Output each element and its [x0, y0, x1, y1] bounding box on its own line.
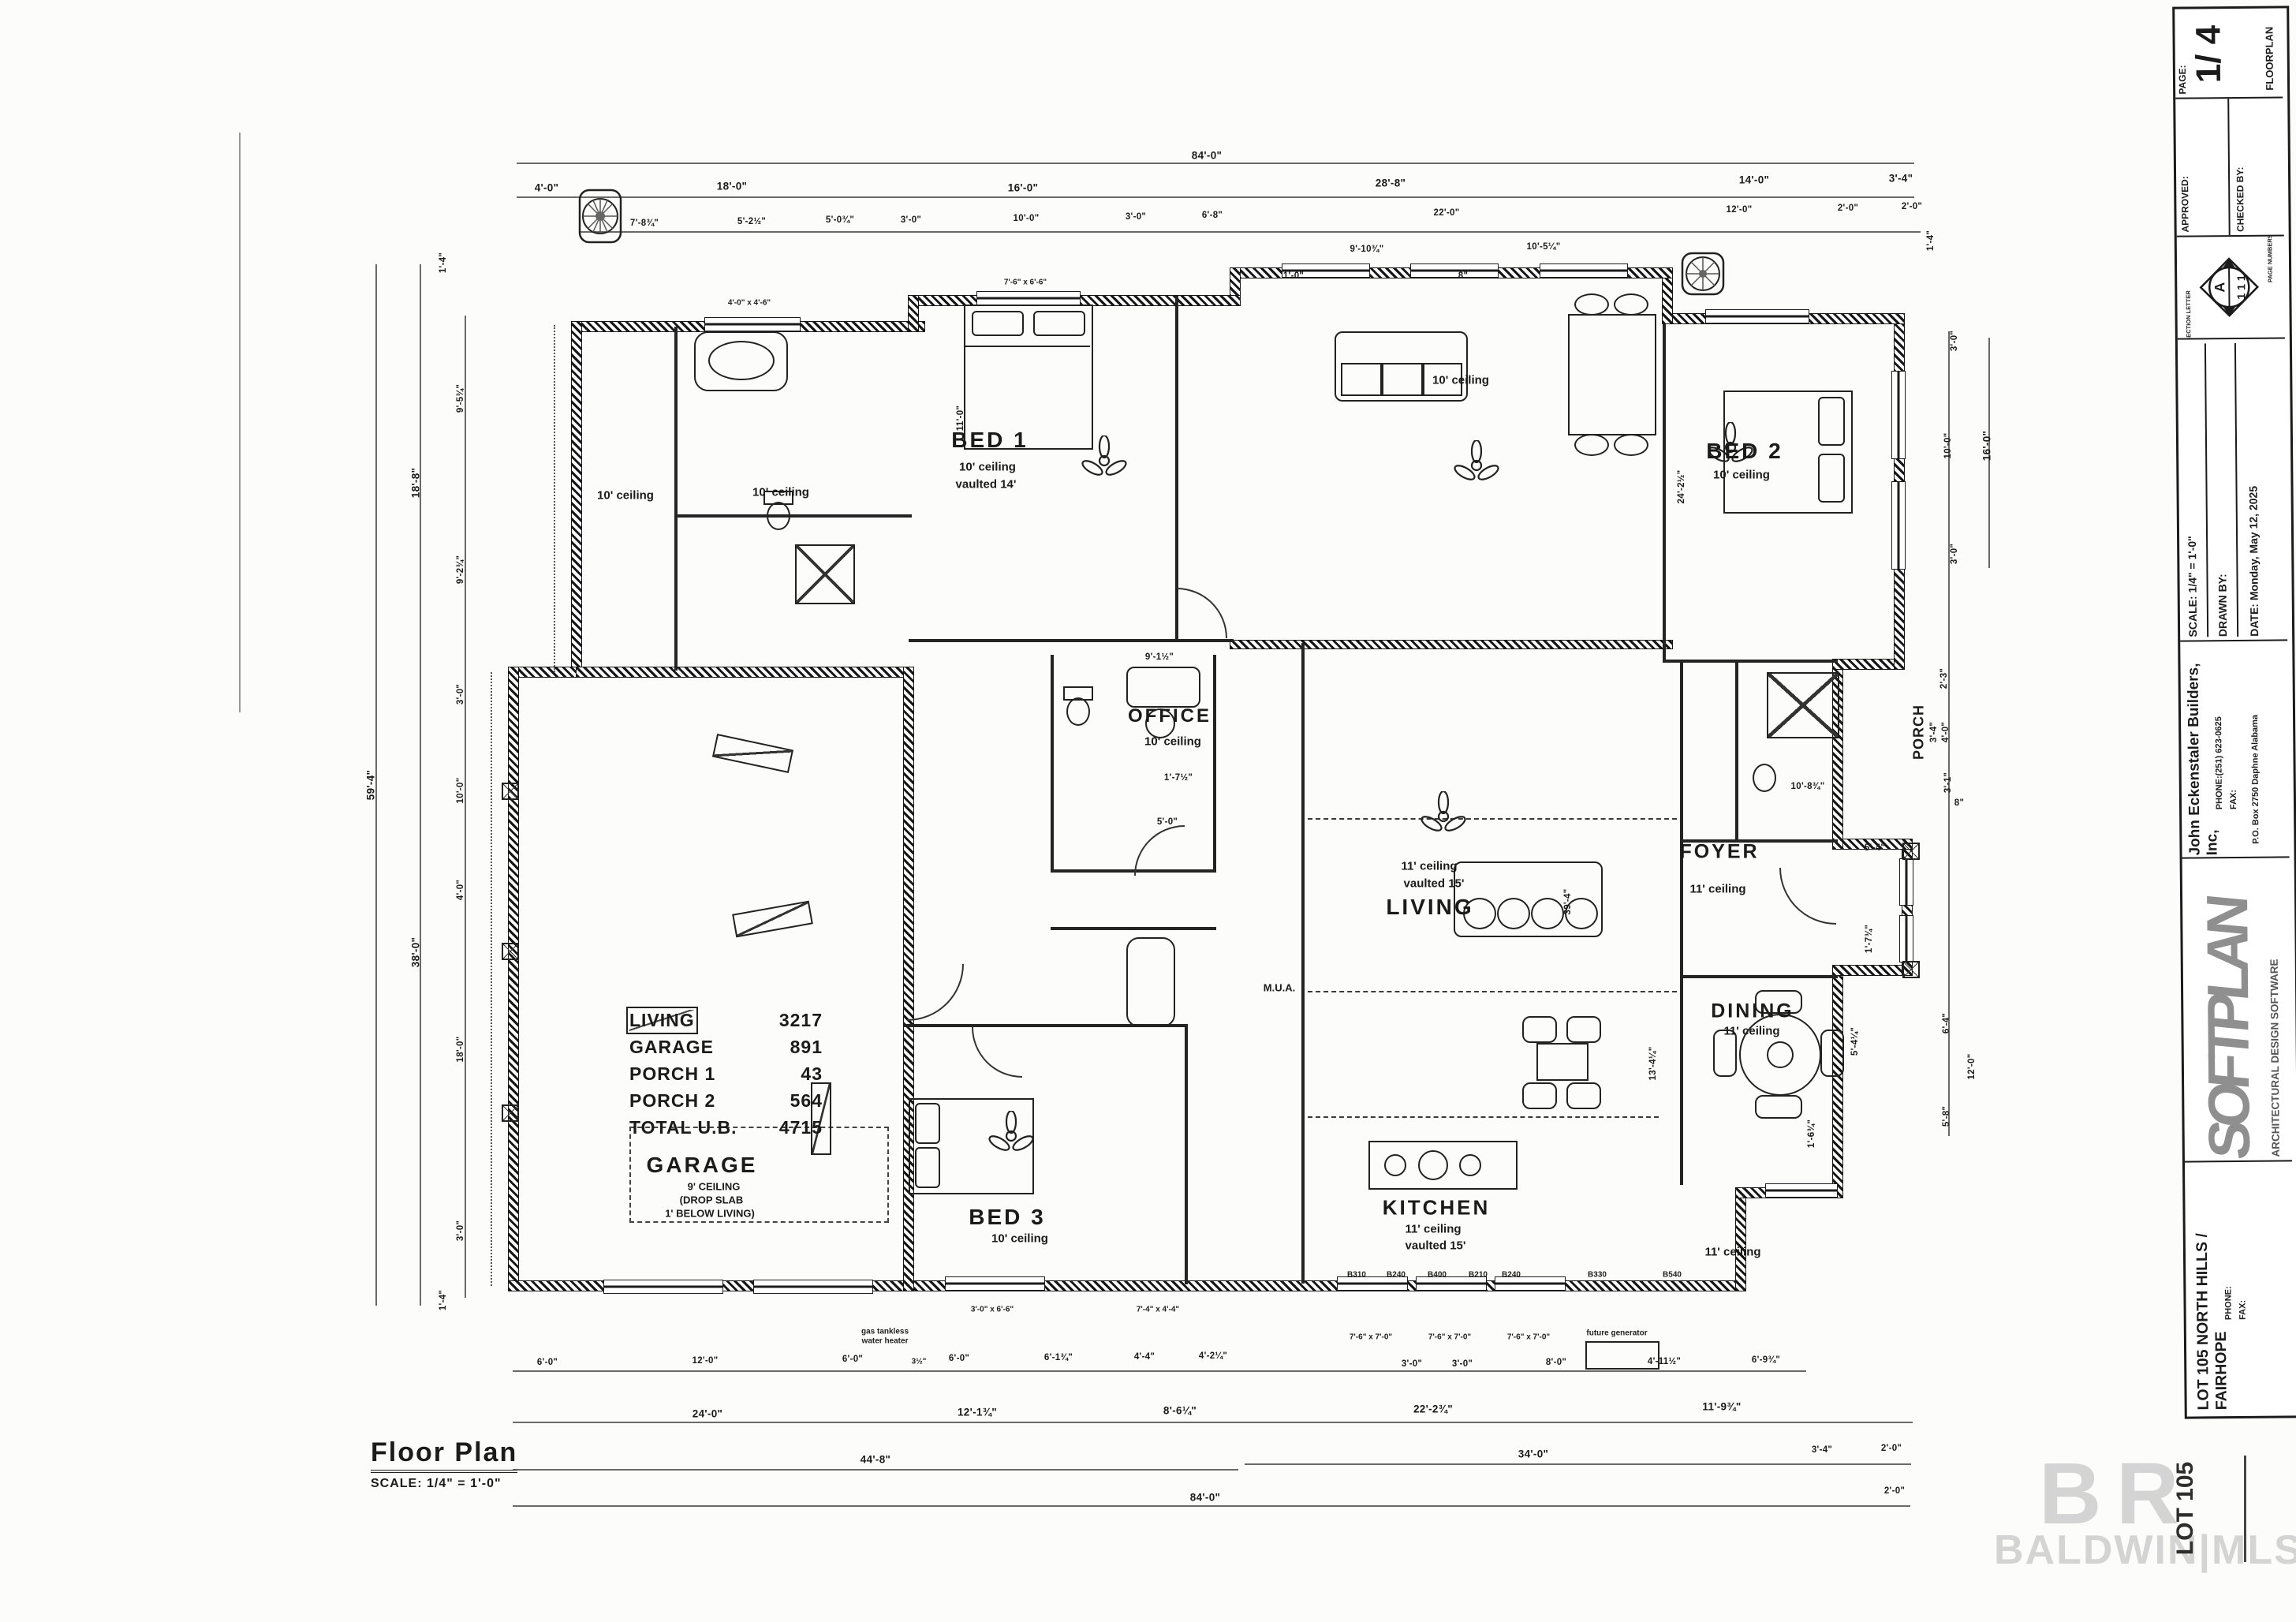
interior-wall — [1735, 663, 1738, 843]
garage-door-opening — [753, 1280, 873, 1294]
dimension-label: 8'-6¼" — [1163, 1405, 1197, 1417]
dimension-label: 3'-4" — [1812, 1445, 1832, 1455]
area-label: LIVING — [629, 1010, 695, 1031]
cabinet-code: B330 — [1588, 1271, 1607, 1280]
company-address: P.O. Box 2750 Daphne Alabama — [2250, 715, 2261, 844]
title-block: PAGE: 1/ 4 FLOORPLAN APPROVED: CHECKED B… — [2172, 6, 2296, 1418]
interior-wall — [674, 327, 678, 671]
room-note: vaulted 15' — [1406, 1239, 1466, 1253]
dimension-label: 4'-0" — [535, 182, 559, 194]
dimension-label: 5'-0¾" — [826, 215, 854, 225]
dimension-label: 28'-8" — [1376, 178, 1406, 189]
window — [1891, 371, 1906, 459]
dimension-label: 8" — [1458, 271, 1468, 281]
room-label-bed2: BED 2 — [1706, 439, 1783, 464]
dimension-label: 5'-0" — [1157, 817, 1178, 827]
dimension-label: 10'-0" — [1943, 432, 1953, 458]
sofa-cushion — [1531, 898, 1564, 929]
porch-column — [1902, 843, 1920, 860]
window-size-label: 7'-6" x 7'-0" — [1350, 1333, 1392, 1342]
room-note: (DROP SLAB — [680, 1194, 744, 1206]
title-block-project-section: LOT 105 NORTH HILLS / FAIRHOPE PHONE: FA… — [2185, 1161, 2294, 1411]
dim-line — [513, 1505, 1910, 1507]
door-swing — [1779, 868, 1836, 925]
window-size-label: 4'-0" x 4'-6" — [728, 299, 771, 308]
dimension-label: 2'-3" — [1939, 668, 1949, 689]
title-block-scale-section: SCALE: 1/4" = 1'-0" DRAWN BY: DATE: Mond… — [2178, 338, 2287, 641]
garage-eave-line — [491, 672, 492, 1286]
area-label: GARAGE — [629, 1037, 714, 1058]
cabinet-code: B240 — [1502, 1271, 1521, 1280]
dimension-label: 9'-10¾" — [1350, 245, 1384, 254]
dimension-label: 3'-4" — [1929, 722, 1939, 742]
dimension-label: 4'-2¼" — [1199, 1351, 1227, 1361]
vault-break-line — [1308, 991, 1677, 992]
dim-line — [580, 231, 1921, 233]
room-note: 10' ceiling — [1144, 735, 1201, 749]
dimension-label: 5'-2½" — [737, 217, 766, 226]
room-note: 10' ceiling — [991, 1232, 1048, 1246]
dimension-label: 3'-0" — [1950, 331, 1959, 351]
room-note: 1' BELOW LIVING) — [665, 1208, 755, 1220]
softplan-logo: SOFTPLAN — [2193, 898, 2263, 1162]
interior-wall — [1301, 643, 1305, 1284]
dim-line — [420, 264, 421, 1306]
room-note: 11' ceiling — [1405, 1223, 1461, 1236]
dimension-label: 3'-1" — [1943, 772, 1953, 793]
area-label: PORCH 2 — [629, 1090, 715, 1112]
pillow — [915, 1147, 940, 1188]
area-label: TOTAL U.B. — [629, 1117, 737, 1138]
floor-plan-sheet: BED 1 10' ceiling vaulted 14' BED 2 10' … — [0, 0, 2296, 1622]
garage-storage — [712, 734, 793, 773]
area-row: PORCH 143 — [629, 1063, 823, 1085]
room-note: vaulted 15' — [1404, 877, 1465, 891]
dim-line — [513, 1422, 1913, 1423]
dimension-label: 9'-1½" — [1145, 652, 1174, 662]
column — [502, 943, 519, 960]
interior-wall — [1663, 323, 1666, 663]
pillow — [1818, 397, 1845, 446]
pillow — [972, 311, 1024, 336]
future-generator-box — [1585, 1341, 1659, 1370]
area-label: PORCH 1 — [629, 1063, 715, 1085]
dimension-label: 6'-8" — [1202, 211, 1223, 220]
dimension-label: 6'-0" — [949, 1354, 969, 1363]
ceiling-fan-icon — [1418, 791, 1469, 842]
dimension-label: 4'-4" — [1134, 1352, 1155, 1362]
exhaust-fan-icon — [577, 188, 623, 245]
dimension-label: 18'-0" — [717, 181, 747, 192]
pillow — [1033, 311, 1085, 336]
dimension-label: 8'-0" — [1546, 1358, 1566, 1367]
stool — [1566, 1016, 1601, 1043]
title-block-symbol-section: SECTION LETTER A 1 1 1 PAGE NUMBERS — [2177, 236, 2285, 339]
stamp-line — [2244, 1456, 2246, 1562]
room-note: 11' ceiling — [1689, 883, 1745, 896]
dimension-label: 3'-0" — [456, 684, 465, 704]
dimension-label: 84'-0" — [1190, 1492, 1220, 1504]
dimension-label: 6'-9¾" — [1752, 1355, 1780, 1365]
dimension-label: 1'-7½" — [1164, 773, 1193, 783]
window-size-label: 7'-6" x 7'-0" — [1507, 1333, 1550, 1342]
dimension-label: 3'-0" — [456, 1220, 465, 1241]
section-letter-label: SECTION LETTER — [2185, 290, 2193, 339]
mls-wordmark: BALDWIN|MLS — [1994, 1527, 2296, 1574]
door-swing — [1134, 825, 1185, 876]
area-value: 43 — [801, 1063, 823, 1085]
cabinet-code: B310 — [1347, 1271, 1366, 1280]
cabinet-code: B400 — [1428, 1271, 1447, 1280]
chair — [1574, 434, 1609, 456]
dimension-label: 2'-0" — [1902, 202, 1922, 211]
interior-wall — [678, 514, 912, 518]
toilet — [1753, 764, 1776, 792]
dimension-label: 1'-4" — [439, 1290, 448, 1310]
area-value: 3217 — [779, 1010, 823, 1031]
dimension-label: 12'-0" — [1967, 1053, 1977, 1079]
sofa-cushion — [1382, 363, 1423, 396]
dimension-label: 39'-4" — [1563, 888, 1573, 914]
interior-wall — [1051, 927, 1216, 930]
dimension-label: 18'-0" — [456, 1036, 465, 1062]
room-note: 9' CEILING — [688, 1181, 741, 1193]
dimension-label: 3'-0" — [1126, 212, 1146, 222]
dimension-label: 11'-0" — [956, 405, 965, 431]
chair — [1614, 293, 1648, 316]
dimension-label: 11'-9¾" — [1702, 1401, 1741, 1413]
dimension-label: 6'-4" — [1942, 1013, 1951, 1033]
sofa-cushion — [1341, 363, 1382, 396]
shower — [795, 544, 855, 604]
column — [502, 1104, 519, 1122]
cabinet-code: B240 — [1387, 1271, 1406, 1280]
lot-stamp: LOT 105 — [2172, 1462, 2199, 1555]
interior-wall — [1051, 869, 1216, 873]
dimension-label: 16'-0" — [1008, 182, 1038, 194]
chair — [1820, 1030, 1844, 1077]
dimension-label: 4'-0" — [1941, 722, 1951, 742]
checked-by-label: CHECKED BY: — [2234, 166, 2246, 232]
exterior-wall — [1230, 641, 1672, 648]
room-note: 10' ceiling — [1432, 374, 1489, 387]
toilet — [1066, 697, 1090, 726]
page-value: 1/ 4 — [2189, 25, 2229, 84]
dimension-label: 34'-0" — [1518, 1448, 1548, 1460]
svg-text:1 1 1: 1 1 1 — [2234, 275, 2247, 299]
dimension-label: 6'-0" — [842, 1355, 863, 1364]
approved-label: APPROVED: — [2179, 176, 2191, 232]
door-swing — [972, 1027, 1022, 1078]
area-value: 564 — [790, 1090, 823, 1112]
room-note: 10' ceiling — [959, 461, 1016, 474]
dimension-label: 2'-0" — [1884, 1486, 1905, 1496]
window-size-label: 7'-6" x 6'-6" — [1004, 278, 1047, 287]
cabinet-code: B210 — [1469, 1271, 1488, 1280]
dimension-label: 12'-0" — [692, 1356, 718, 1366]
room-note: vaulted 14' — [956, 478, 1017, 491]
sheet-edge-line — [239, 133, 241, 712]
window — [1891, 481, 1906, 570]
title-block-softplan-section: SOFTPLAN ARCHITECTURAL DESIGN SOFTWARE — [2182, 858, 2292, 1162]
interior-wall — [1213, 655, 1216, 872]
stool — [1522, 1082, 1557, 1109]
softplan-subtitle: ARCHITECTURAL DESIGN SOFTWARE — [2268, 959, 2282, 1157]
room-note: 11' ceiling — [1401, 860, 1457, 873]
room-note: 11' ceiling — [1723, 1025, 1779, 1038]
title-block-company-section: John Eckenstaler Builders, Inc, PHONE:(2… — [2180, 641, 2289, 858]
area-table: LIVING3217 GARAGE891 PORCH 143 PORCH 256… — [629, 1010, 823, 1144]
dim-line — [1245, 1463, 1911, 1465]
area-value: 891 — [790, 1037, 823, 1058]
dim-line — [517, 196, 1914, 198]
dimension-label: 12'-1¾" — [958, 1407, 997, 1418]
window — [1899, 915, 1913, 962]
cabinet-code: B540 — [1663, 1271, 1682, 1280]
exterior-wall — [509, 667, 518, 1291]
garage-storage — [732, 901, 813, 938]
column — [502, 783, 519, 800]
dimension-label: 9'-5¾" — [456, 384, 465, 413]
stool — [1522, 1016, 1557, 1043]
toilet — [767, 502, 790, 530]
section-marker-icon: A 1 1 1 — [2197, 256, 2261, 320]
date-value: DATE: Monday, May 12, 2025 — [2246, 486, 2261, 637]
dimension-label: 14'-0" — [1739, 174, 1769, 186]
room-label-porch: PORCH — [1911, 704, 1928, 760]
drawing-scale: SCALE: 1/4" = 1'-0" — [371, 1477, 502, 1491]
offset-dim: 3½" — [912, 1358, 927, 1366]
page-label: PAGE: — [2177, 65, 2188, 94]
room-note: 10' ceiling — [1713, 469, 1770, 482]
dimension-label: 1'-4" — [1926, 230, 1936, 251]
bathtub — [1126, 937, 1175, 1027]
window — [1705, 309, 1809, 323]
dimension-label: 22'-2¾" — [1413, 1403, 1453, 1415]
interior-wall — [1185, 1024, 1188, 1284]
window — [704, 317, 801, 331]
dimension-label: 3'-0" — [1452, 1359, 1473, 1369]
stool — [1566, 1082, 1601, 1109]
exterior-wall — [577, 667, 909, 677]
dimension-label: 1'-7¾" — [1865, 925, 1874, 953]
exterior-wall — [1833, 966, 1912, 975]
pillow — [915, 1103, 940, 1144]
breakfast-table — [1536, 1043, 1589, 1081]
ceiling-fan-icon — [1079, 435, 1129, 486]
table — [1568, 314, 1656, 435]
exterior-wall — [509, 667, 581, 677]
toilet-tank — [1063, 686, 1093, 701]
dimension-label: 6'-1¾" — [1044, 1353, 1073, 1362]
water-heater-label: gas tankless — [861, 1328, 909, 1336]
burner — [1459, 1154, 1481, 1176]
interior-wall — [1663, 660, 1838, 663]
dimension-label: 12'-0" — [1726, 205, 1752, 215]
desk — [1126, 667, 1200, 708]
garage-door-opening — [603, 1280, 723, 1294]
door-swing — [1177, 588, 1227, 638]
dim-line — [517, 163, 1914, 164]
dimension-label: 5'-8" — [1942, 1106, 1951, 1127]
water-heater-label: water heater — [862, 1337, 909, 1346]
dimension-label: 6'-0" — [537, 1358, 558, 1367]
interior-wall — [1680, 660, 1683, 1185]
shower — [1767, 672, 1839, 738]
window — [1410, 263, 1499, 278]
project-phone: PHONE: — [2223, 1286, 2233, 1320]
dimension-label: 7'-8¾" — [630, 219, 659, 228]
area-row: TOTAL U.B.4715 — [629, 1117, 823, 1138]
exterior-wall — [572, 322, 581, 677]
dimension-label: 3'-0" — [901, 215, 921, 225]
area-value: 4715 — [779, 1117, 823, 1138]
dimension-label: 8" — [1954, 798, 1964, 808]
room-label-bed1: BED 1 — [951, 428, 1028, 453]
dimension-label: 84'-0" — [1192, 150, 1222, 162]
drawn-by-label: DRAWN BY: — [2214, 343, 2238, 637]
exterior-wall — [1736, 1188, 1745, 1291]
title-block-approval-section: APPROVED: CHECKED BY: — [2175, 98, 2284, 237]
room-label-foyer: FOYER — [1679, 841, 1759, 864]
dimension-label: 24'-0" — [693, 1408, 722, 1420]
dimension-label: 1'-4" — [439, 252, 448, 273]
room-label-dining: DINING — [1711, 1000, 1794, 1023]
company-fax: FAX: — [2229, 790, 2238, 809]
company-phone: PHONE:(251) 623-0625 — [2214, 716, 2224, 809]
dimension-label: 24'-2½" — [1677, 470, 1686, 504]
room-label-garage: GARAGE — [647, 1153, 758, 1178]
scale-value: SCALE: 1/4" = 1'-0" — [2184, 343, 2208, 637]
dimension-label: 10'-5¼" — [1527, 242, 1561, 252]
window — [1899, 858, 1913, 906]
window-size-label: 7'-6" x 7'-0" — [1428, 1333, 1471, 1342]
area-row: LIVING3217 — [629, 1010, 823, 1031]
dimension-label: 9'-2¾" — [456, 555, 465, 584]
page-numbers-label: PAGE NUMBERS — [2266, 236, 2274, 282]
dimension-label: 5'-4" — [1865, 843, 1885, 853]
dimension-label: 3'-0" — [1950, 544, 1959, 564]
window-size-label: 3'-0" x 6'-6" — [971, 1306, 1014, 1314]
dimension-label: 3'-4" — [1889, 173, 1913, 185]
room-label-bed3: BED 3 — [969, 1205, 1045, 1230]
window — [1540, 263, 1628, 278]
dim-line — [513, 1370, 1806, 1372]
window — [1765, 1183, 1838, 1198]
wing-eave-line — [554, 325, 555, 672]
dimension-label: 13'-4¼" — [1648, 1047, 1658, 1081]
vault-break-line — [1308, 818, 1677, 820]
svg-text:A: A — [2212, 282, 2227, 293]
room-label-office: OFFICE — [1128, 705, 1211, 727]
sheet-type: FLOORPLAN — [2263, 27, 2275, 91]
dimension-label: 2'-0" — [1881, 1444, 1902, 1453]
blanket-line — [964, 346, 1090, 347]
dining-centerpiece — [1767, 1041, 1794, 1068]
dimension-label: 38'-0" — [410, 937, 422, 967]
title-block-page-section: PAGE: 1/ 4 FLOORPLAN — [2175, 8, 2283, 99]
room-note: 11' ceiling — [1704, 1246, 1760, 1259]
dimension-label: 18'-8" — [410, 468, 422, 498]
dimension-label: 22'-0" — [1433, 208, 1459, 218]
chair — [1574, 293, 1609, 316]
exterior-wall — [909, 296, 918, 331]
area-row: GARAGE891 — [629, 1037, 823, 1058]
chair — [1614, 434, 1648, 456]
chair — [1755, 1095, 1802, 1119]
dimension-label: 10'-0" — [1013, 214, 1039, 223]
window — [945, 1276, 1045, 1291]
sink — [1418, 1150, 1448, 1180]
exhaust-fan-icon — [1680, 251, 1726, 297]
interior-wall — [909, 639, 1234, 642]
dimension-label: 10'-0" — [456, 777, 465, 803]
dim-line — [465, 316, 466, 1298]
door-swing — [907, 964, 964, 1021]
dimension-label: 2'-0" — [1838, 204, 1858, 213]
porch-column — [1902, 961, 1920, 978]
pillow — [1818, 454, 1845, 503]
area-row: PORCH 2564 — [629, 1090, 823, 1112]
interior-wall — [1051, 655, 1054, 872]
room-label-living: LIVING — [1386, 895, 1473, 920]
dimension-label: 1'-0" — [1283, 271, 1304, 281]
room-label-kitchen: KITCHEN — [1383, 1196, 1491, 1220]
sofa-cushion — [1497, 898, 1530, 929]
ceiling-fan-icon — [986, 1111, 1036, 1161]
window-size-label: 7'-4" x 4'-4" — [1137, 1306, 1179, 1314]
dimension-label: 59'-4" — [365, 770, 377, 800]
room-note: 10' ceiling — [752, 486, 809, 499]
burner — [1384, 1154, 1406, 1176]
exterior-wall — [1833, 975, 1842, 1198]
future-generator-label: future generator — [1586, 1329, 1647, 1338]
drawing-title: Floor Plan — [371, 1437, 517, 1473]
vault-break-line — [1308, 1116, 1659, 1118]
mua-label: M.U.A. — [1264, 982, 1295, 994]
dim-line — [513, 1469, 1238, 1471]
project-fax: FAX: — [2238, 1300, 2248, 1320]
exterior-wall — [1833, 660, 1904, 669]
dimension-label: 4'-0" — [456, 880, 465, 900]
ceiling-fan-icon — [1451, 440, 1502, 491]
dimension-label: 3'-0" — [1402, 1359, 1422, 1369]
dimension-label: 5'-4¼" — [1850, 1027, 1860, 1056]
dimension-label: 16'-0" — [1981, 431, 1993, 461]
dimension-label: 1'-6¾" — [1807, 1119, 1816, 1148]
bathtub-basin — [708, 341, 775, 380]
dimension-label: 10'-8¾" — [1791, 782, 1825, 791]
dimension-label: 44'-8" — [861, 1454, 890, 1466]
window — [976, 291, 1081, 305]
room-note: 10' ceiling — [597, 489, 654, 503]
interior-wall — [1680, 975, 1838, 978]
